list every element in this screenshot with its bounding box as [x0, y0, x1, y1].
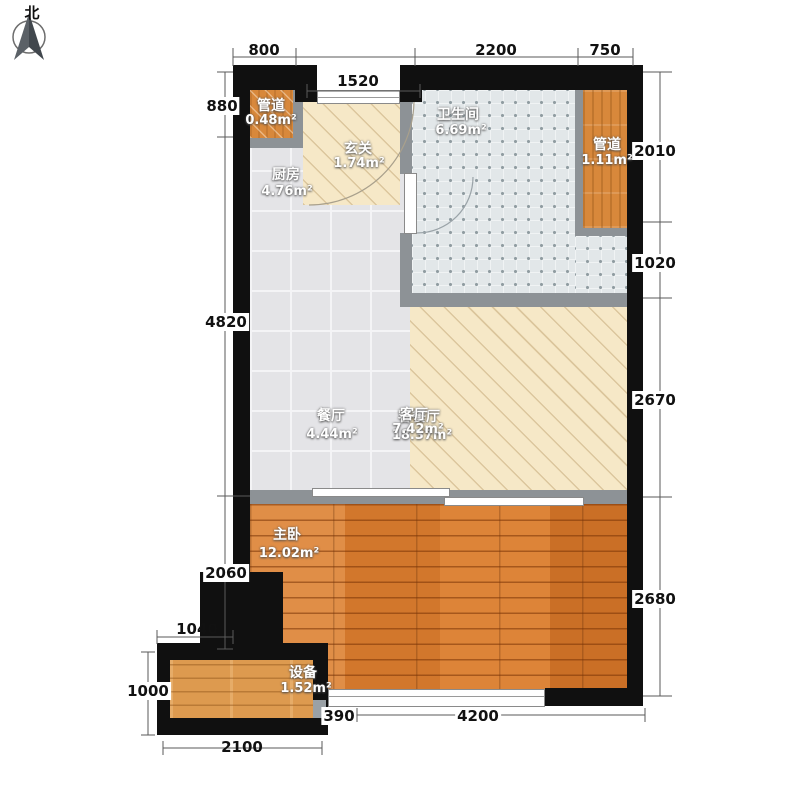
top-wall-right — [422, 65, 643, 90]
bathroom-door-leaf — [404, 173, 417, 234]
dim-bottom-4200: 4200 — [455, 707, 501, 725]
dining-label: 餐厅 — [317, 405, 345, 425]
dim-left-2060: 2060 — [203, 564, 249, 582]
duct-left-label: 管道 — [257, 95, 285, 115]
dim-top-750: 750 — [589, 41, 620, 59]
dim-right-2010: 2010 — [632, 142, 678, 160]
bedroom-window — [328, 689, 545, 707]
dim-right-2670: 2670 — [632, 391, 678, 409]
duct-left-bottom-wall — [250, 138, 303, 148]
entry-post-left — [295, 65, 317, 102]
master-bedroom-area: 12.02m² — [259, 546, 319, 561]
dim-top-800: 800 — [248, 41, 279, 59]
sliding-door-leaf-1 — [312, 488, 450, 497]
bathroom-area: 6.69m² — [435, 123, 486, 138]
duct-right-area: 1.11m² — [581, 153, 632, 168]
duct-right-bottom-wall — [575, 228, 627, 236]
master-bedroom-label: 主卧 — [273, 524, 301, 544]
dim-bottom-390: 390 — [321, 707, 356, 725]
living-area: 7.42m² — [392, 422, 443, 437]
living-label: 客厅 — [400, 404, 428, 424]
dim-top-2200: 2200 — [475, 41, 517, 59]
dim-ext-2100: 2100 — [221, 738, 263, 756]
entry-area: 1.74m² — [333, 156, 384, 171]
entry-post-right — [400, 65, 422, 102]
living-floor — [410, 307, 627, 490]
dim-left-880: 880 — [204, 97, 239, 115]
kitchen-area: 4.76m² — [261, 184, 312, 199]
equipment-area: 1.52m² — [280, 681, 331, 696]
dim-ext-1000: 1000 — [125, 682, 171, 700]
bottom-right-wall — [545, 688, 643, 706]
compass-north-label: 北 — [24, 2, 39, 23]
equipment-label: 设备 — [289, 662, 317, 682]
dim-entry-1520: 1520 — [337, 72, 379, 90]
dining-area: 4.44m² — [306, 427, 357, 442]
duct-left-area: 0.48m² — [245, 113, 296, 128]
entry-label: 玄关 — [344, 138, 372, 158]
dim-ext-1040: 1040 — [176, 620, 218, 638]
bathroom-left-wall-upper — [400, 90, 412, 174]
bathroom-floor-right — [575, 236, 627, 293]
dim-left-4820: 4820 — [203, 313, 249, 331]
bathroom-label: 卫生间 — [437, 104, 479, 124]
kitchen-label: 厨房 — [272, 164, 300, 184]
dim-right-2680: 2680 — [632, 590, 678, 608]
top-wall-left — [233, 65, 295, 90]
sliding-door-leaf-2 — [444, 497, 584, 506]
dim-right-1020: 1020 — [632, 254, 678, 272]
duct-right-label: 管道 — [593, 134, 621, 154]
floor-plan: 北 800 2200 750 1520 880 4820 2060 2010 1… — [0, 0, 800, 800]
bathroom-bottom-wall — [400, 293, 627, 307]
entry-door-leaf — [317, 90, 400, 104]
